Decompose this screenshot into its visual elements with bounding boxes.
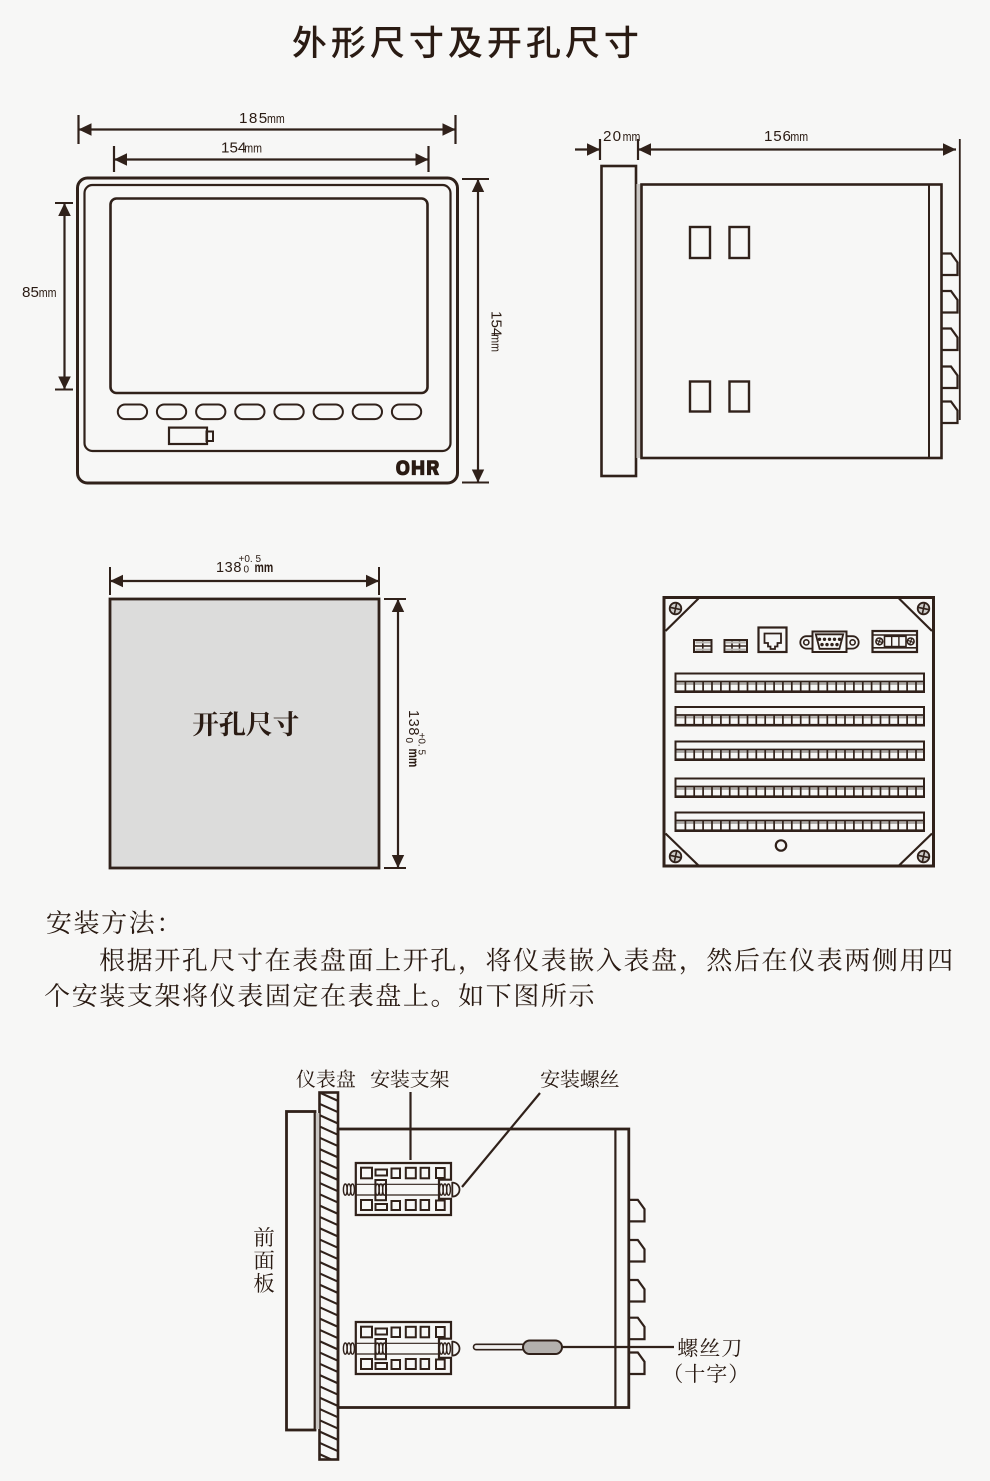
svg-text:20: 20: [603, 128, 622, 145]
svg-text:mm: mm: [267, 111, 285, 126]
svg-text:mm: mm: [488, 334, 503, 352]
svg-text:mm: mm: [39, 285, 57, 300]
svg-text:mm: mm: [406, 749, 422, 768]
svg-text:156: 156: [764, 128, 792, 145]
svg-text:mm: mm: [790, 129, 808, 144]
svg-text:185: 185: [239, 110, 269, 127]
svg-text:mm: mm: [244, 140, 262, 155]
svg-text:154: 154: [221, 140, 246, 157]
svg-text:154: 154: [488, 311, 505, 336]
svg-text:0: 0: [244, 565, 250, 576]
svg-text:mm: mm: [255, 560, 274, 576]
svg-text:0: 0: [403, 738, 414, 744]
svg-text:85: 85: [22, 284, 39, 301]
